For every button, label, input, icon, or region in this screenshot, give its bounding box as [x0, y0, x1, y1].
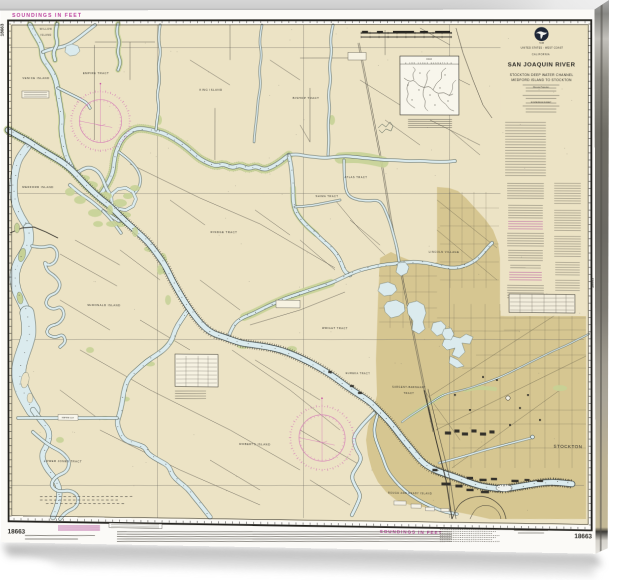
svg-text:EMPIRE CUT: EMPIRE CUT: [62, 417, 75, 419]
svg-text:MEDFORD ISLAND: MEDFORD ISLAND: [22, 185, 53, 189]
svg-text:ISLAND: ISLAND: [40, 34, 51, 37]
svg-text:SOUNDINGS IN FEET: SOUNDINGS IN FEET: [531, 102, 552, 104]
svg-text:LINCOLN VILLAGE: LINCOLN VILLAGE: [429, 250, 460, 254]
svg-text:18663: 18663: [426, 59, 433, 61]
svg-text:ROBERTS ISLAND: ROBERTS ISLAND: [239, 442, 270, 447]
svg-text:Mercator Projection: Mercator Projection: [533, 85, 549, 88]
svg-text:RINDGE TRACT: RINDGE TRACT: [211, 230, 238, 234]
svg-text:18663: 18663: [1, 23, 5, 36]
svg-text:WRIGHT TRACT: WRIGHT TRACT: [322, 326, 348, 330]
svg-text:SAN JOAQUIN RIVER: SAN JOAQUIN RIVER: [508, 62, 576, 68]
svg-text:TRACT: TRACT: [404, 392, 415, 395]
svg-text:VENICE ISLAND: VENICE ISLAND: [22, 76, 49, 80]
svg-text:4 199 11303 60590713.6: 4 199 11303 60590713.6: [405, 63, 453, 65]
svg-text:BISHOP TRACT: BISHOP TRACT: [293, 96, 320, 100]
svg-text:SHIMA TRACT: SHIMA TRACT: [316, 194, 339, 198]
svg-text:18663: 18663: [574, 533, 592, 541]
svg-text:SOUNDINGS IN FEET: SOUNDINGS IN FEET: [12, 13, 82, 19]
svg-text:McDONALD ISLAND: McDONALD ISLAND: [87, 303, 120, 307]
svg-text:18663: 18663: [590, 278, 594, 288]
svg-text:EMPIRE TRACT: EMPIRE TRACT: [83, 71, 109, 75]
svg-text:EUREKA TRACT: EUREKA TRACT: [346, 372, 371, 375]
svg-text:WILLOW: WILLOW: [40, 28, 53, 31]
svg-text:MEDFORD ISLAND TO STOCKTON: MEDFORD ISLAND TO STOCKTON: [511, 78, 572, 82]
svg-text:STOCKTON: STOCKTON: [554, 444, 583, 450]
svg-text:18663: 18663: [8, 528, 26, 535]
svg-text:UNITED STATES - WEST COAST: UNITED STATES - WEST COAST: [521, 47, 564, 50]
svg-text:LOWER JONES TRACT: LOWER JONES TRACT: [44, 459, 82, 464]
svg-text:CALIFORNIA: CALIFORNIA: [532, 53, 550, 56]
svg-text:SARGENT-BARNHART: SARGENT-BARNHART: [392, 386, 426, 390]
svg-text:STOCKTON DEEP WATER CHANNEL: STOCKTON DEEP WATER CHANNEL: [510, 73, 574, 77]
svg-text:ATLAS TRACT: ATLAS TRACT: [345, 175, 368, 179]
svg-text:KING ISLAND: KING ISLAND: [199, 88, 222, 92]
